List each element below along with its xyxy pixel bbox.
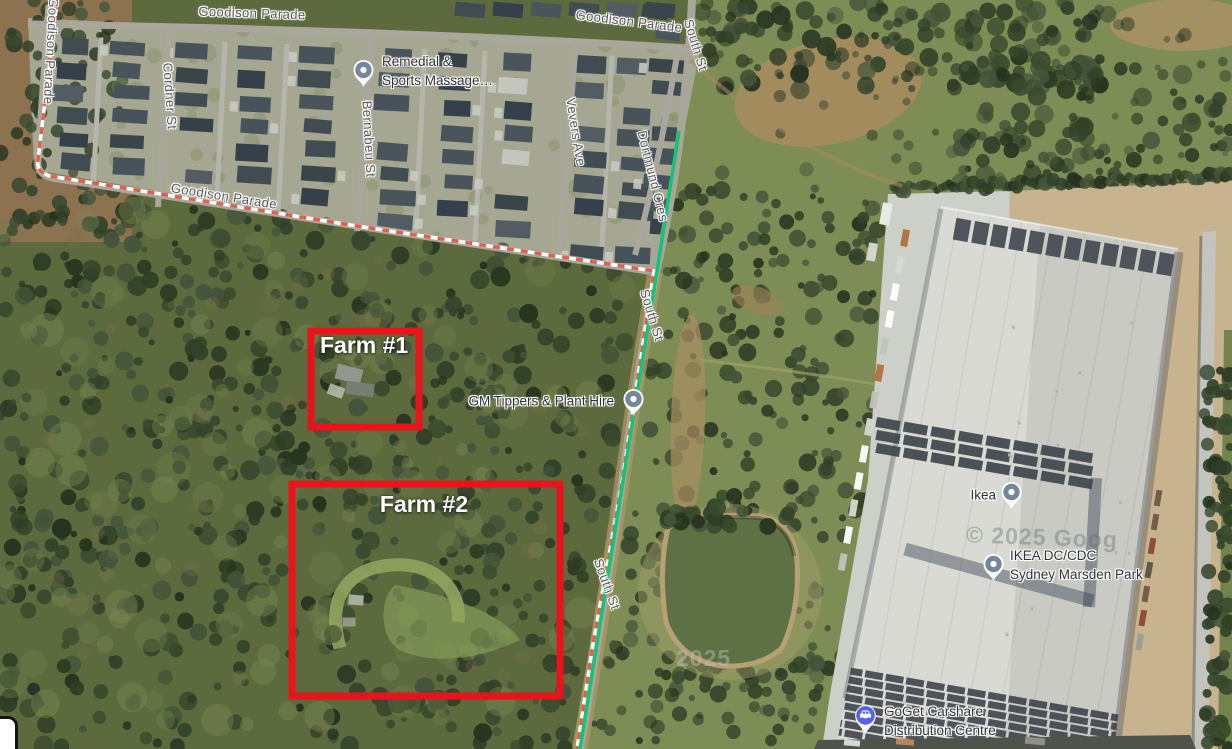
car-pin-icon[interactable] — [852, 702, 879, 735]
poi-label[interactable]: GM Tippers & Plant Hire — [468, 392, 614, 411]
street-label-south-st-mid: South St — [637, 287, 667, 342]
map-control-partial[interactable] — [0, 716, 18, 749]
map-labels: Goodison Parade Goodison Parade Goodison… — [0, 0, 1232, 749]
map-canvas[interactable]: Goodison Parade Goodison Parade Goodison… — [0, 0, 1232, 749]
map-pin-icon[interactable] — [999, 480, 1024, 510]
street-label-goodison-parade-top-1: Goodison Parade — [198, 4, 306, 23]
poi-label[interactable]: Remedial & Sports Massage… — [382, 52, 493, 90]
map-pin-icon[interactable] — [351, 58, 376, 88]
street-label-vevers-ave: Vevers Ave — [563, 97, 589, 167]
street-label-goodison-parade-bottom: Goodison Parade — [170, 180, 278, 212]
street-label-south-st-low: South St — [591, 556, 623, 611]
street-label-cordner-st: Cordner St — [160, 62, 180, 130]
imagery-watermark: © 2025 Goog — [966, 521, 1119, 553]
street-label-bernabeu-st: Bernabeu St — [360, 100, 379, 177]
map-pin-icon[interactable] — [981, 552, 1006, 582]
poi-label[interactable]: Ikea — [970, 486, 996, 505]
map-pin-icon[interactable] — [621, 387, 646, 417]
annotation-farm-1-label: Farm #1 — [320, 332, 408, 359]
street-label-goodison-parade-left: Goodison Parade — [41, 0, 62, 105]
poi-label[interactable]: GoGet Carshare Distribution Centre — [884, 702, 996, 740]
annotation-farm-2-label: Farm #2 — [380, 491, 468, 518]
street-label-dortmund-cres: Dortmund Cres — [634, 129, 671, 223]
street-label-goodison-parade-top-2: Goodison Parade — [575, 7, 683, 35]
imagery-watermark: 2025 — [676, 645, 731, 672]
street-label-south-st-top: South St — [681, 17, 711, 72]
